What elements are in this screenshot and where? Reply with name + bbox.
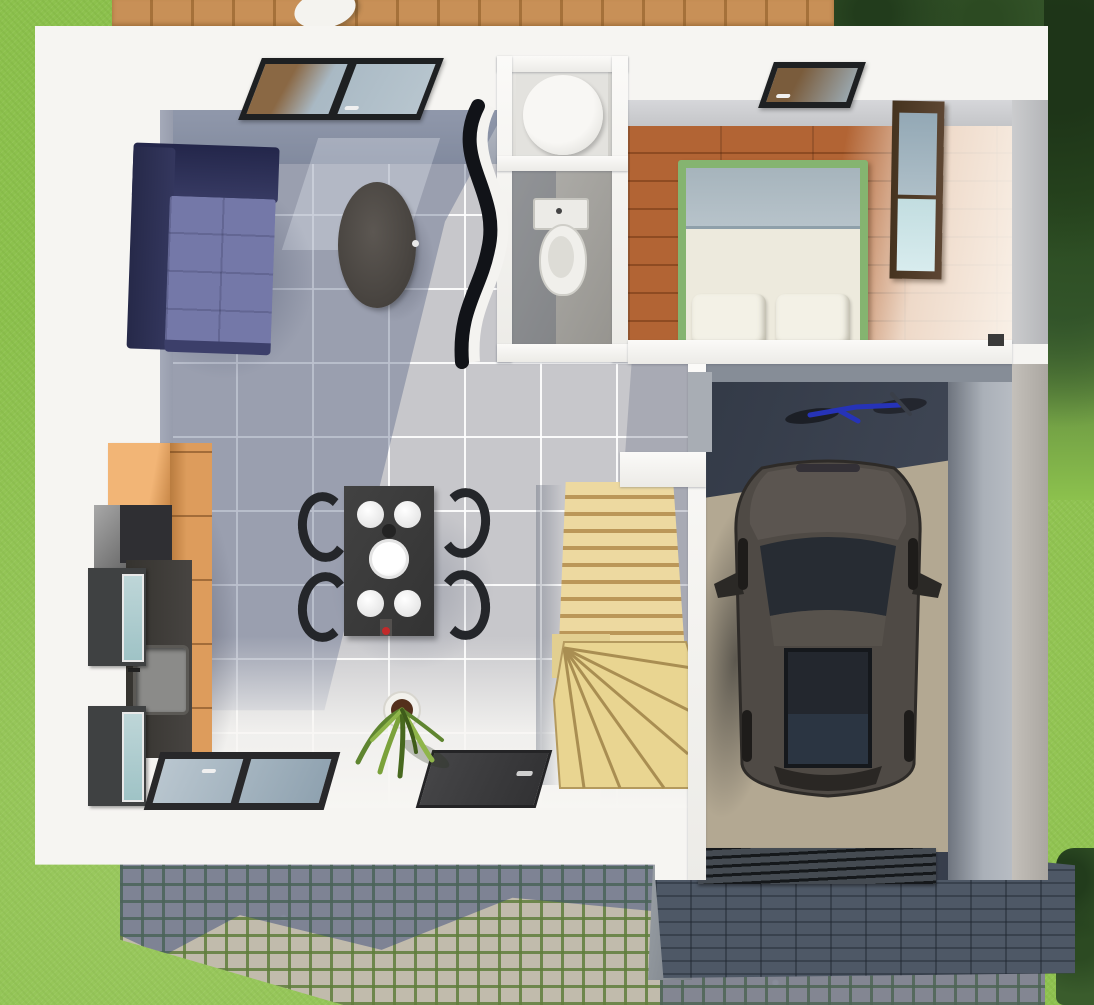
bed-blanket — [686, 168, 860, 229]
oval-coffee-table — [338, 182, 416, 308]
plate — [357, 590, 384, 617]
kitchen-dark-unit — [120, 505, 172, 563]
kitchen-glass-cabinet-1 — [88, 568, 146, 666]
curved-partition-wall — [438, 98, 522, 370]
centre-bowl — [369, 539, 409, 579]
coffee-table-knob — [412, 240, 419, 247]
bedroom-skylight-window — [758, 62, 866, 108]
bathroom-wall-east — [612, 56, 628, 362]
front-wall-window — [144, 752, 341, 810]
garage-east-wall-face — [948, 382, 1012, 880]
sofa-front-edge — [164, 340, 270, 356]
window-handle — [201, 769, 216, 773]
wood-deck-strip — [112, 0, 834, 27]
mirrored-wardrobe — [889, 101, 944, 280]
wardrobe-mirror-bottom — [897, 199, 936, 272]
wardrobe-mirror-top — [898, 113, 937, 196]
window-handle — [776, 94, 791, 98]
garage-outer-east-wall — [1012, 364, 1048, 880]
toilet-bowl — [539, 224, 587, 296]
dining-table — [344, 486, 434, 636]
hall-wall-step — [620, 452, 706, 487]
window-handle — [344, 106, 360, 110]
stair-winder-steps — [552, 640, 692, 790]
corner-sofa — [126, 142, 283, 357]
plate — [357, 501, 384, 528]
staircase — [552, 482, 692, 788]
plate — [394, 590, 421, 617]
red-accent-item — [380, 619, 392, 636]
floorplan-scene — [0, 0, 1094, 1005]
door-handle — [516, 771, 533, 776]
potted-plant — [350, 688, 450, 798]
toilet-flush-button — [556, 208, 562, 214]
table-vase-hole — [382, 524, 396, 538]
cabinet-glass-pane — [122, 712, 144, 802]
bedroom-east-wall-face — [1012, 100, 1048, 344]
bedroom-wall-south — [628, 340, 1012, 364]
plate — [394, 501, 421, 528]
bicycle — [780, 376, 932, 436]
sofa-seat-cushions — [165, 196, 276, 352]
kitchen-glass-cabinet-2 — [88, 706, 146, 806]
garage-door-slats — [698, 848, 936, 884]
kitchen-faucet — [128, 668, 140, 672]
cabinet-glass-pane — [122, 574, 144, 662]
window-mullion — [231, 759, 252, 803]
living-room-skylight-window — [238, 58, 444, 120]
garage-wall-niche — [688, 372, 712, 452]
bathroom-wall-north — [497, 56, 628, 72]
dining-set — [296, 480, 476, 645]
round-shower-cabin — [523, 75, 603, 155]
bedroom-south-window-notch — [988, 334, 1004, 346]
double-bed — [678, 160, 868, 358]
parked-car — [708, 454, 948, 804]
kitchen-wall-cabinet-orange — [108, 443, 170, 505]
trees-right-edge — [1044, 0, 1094, 500]
